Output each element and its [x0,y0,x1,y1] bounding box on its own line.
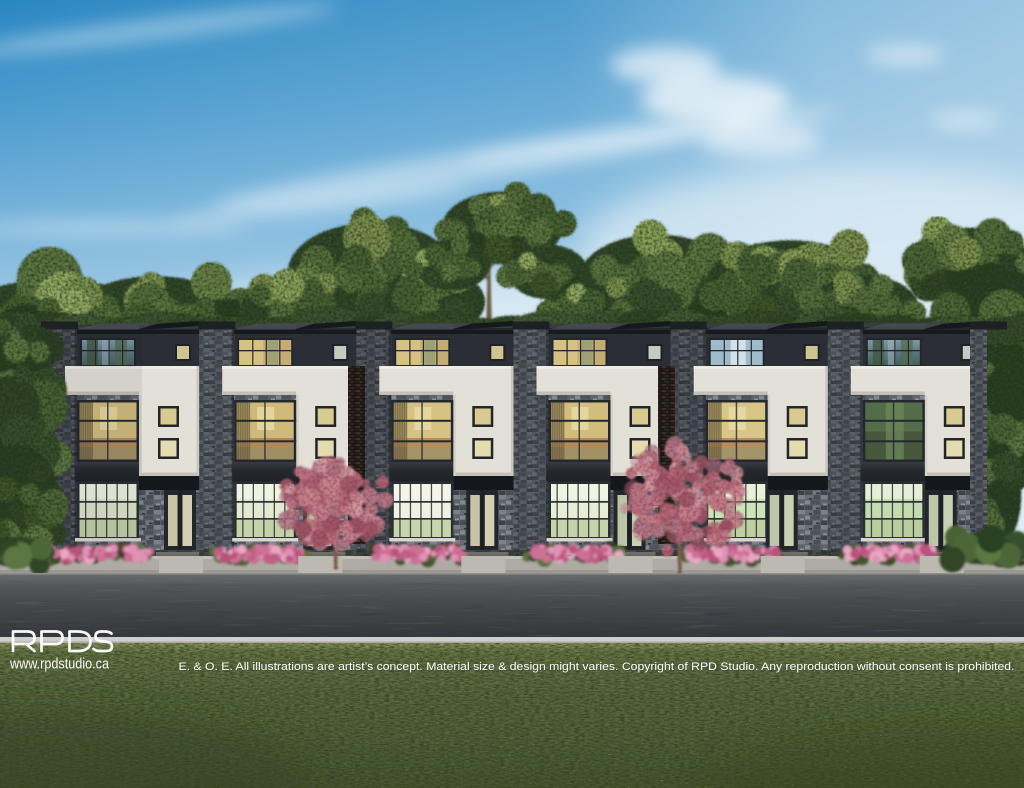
svg-text:www.rpdstudio.ca: www.rpdstudio.ca [9,657,110,673]
svg-text:E. & O. E. All illustrations a: E. & O. E. All illustrations are artist’… [179,661,1015,673]
